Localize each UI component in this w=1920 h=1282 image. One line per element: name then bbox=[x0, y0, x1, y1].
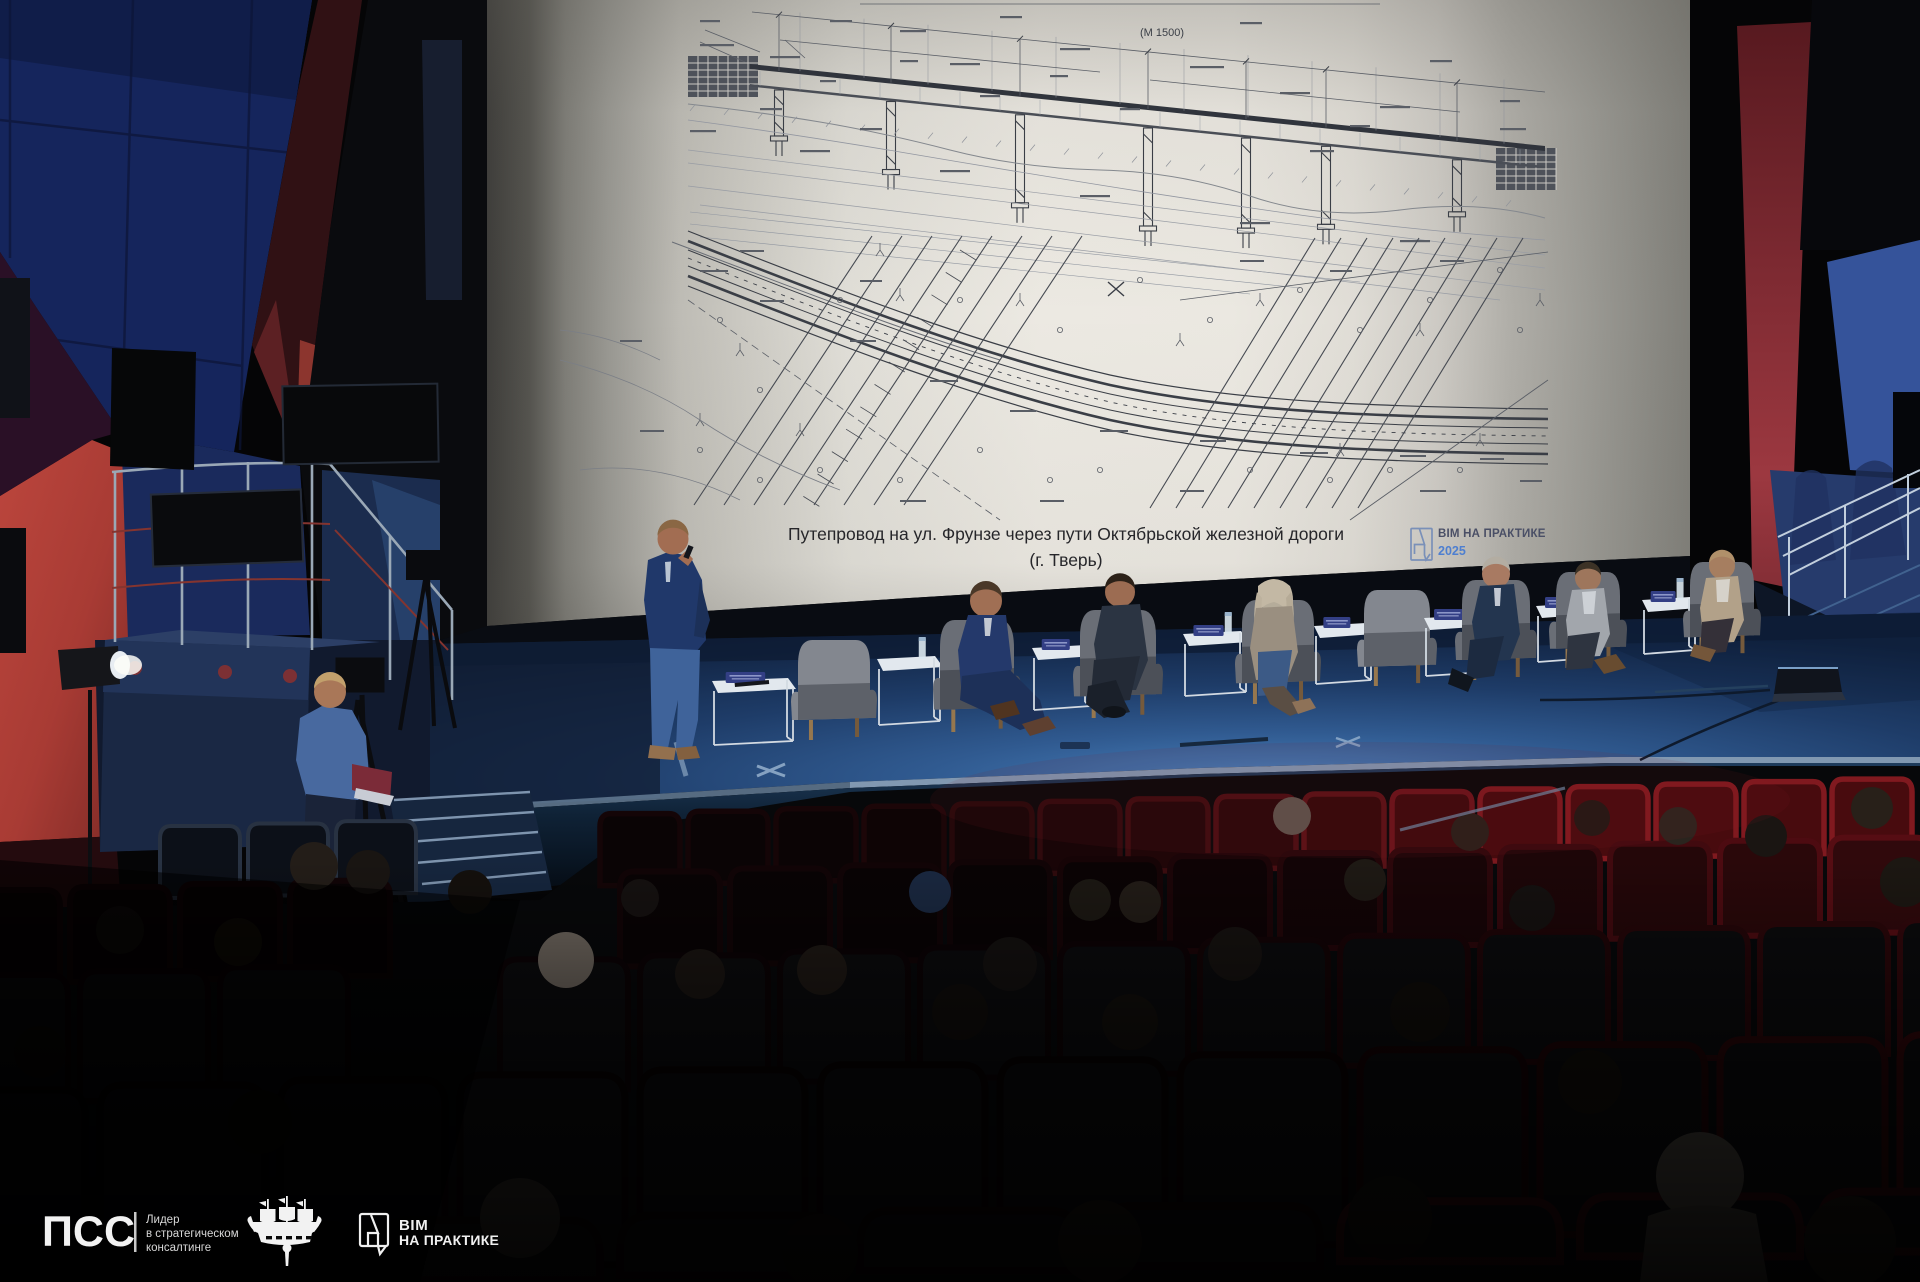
svg-text:2025: 2025 bbox=[1438, 544, 1466, 558]
svg-text:Лидер: Лидер bbox=[146, 1214, 179, 1226]
svg-text:(г. Тверь): (г. Тверь) bbox=[1029, 550, 1102, 570]
svg-text:BIM НА ПРАКТИКЕ: BIM НА ПРАКТИКЕ bbox=[1438, 528, 1546, 540]
svg-text:ПСС: ПСС bbox=[42, 1208, 135, 1256]
svg-text:Путепровод на ул. Фрунзе через: Путепровод на ул. Фрунзе через пути Октя… bbox=[788, 524, 1344, 544]
svg-text:НА ПРАКТИКЕ: НА ПРАКТИКЕ bbox=[399, 1232, 499, 1248]
svg-text:(M 1500): (M 1500) bbox=[1140, 27, 1184, 39]
svg-text:консалтинге: консалтинге bbox=[146, 1242, 211, 1254]
svg-text:в стратегическом: в стратегическом bbox=[146, 1228, 239, 1240]
